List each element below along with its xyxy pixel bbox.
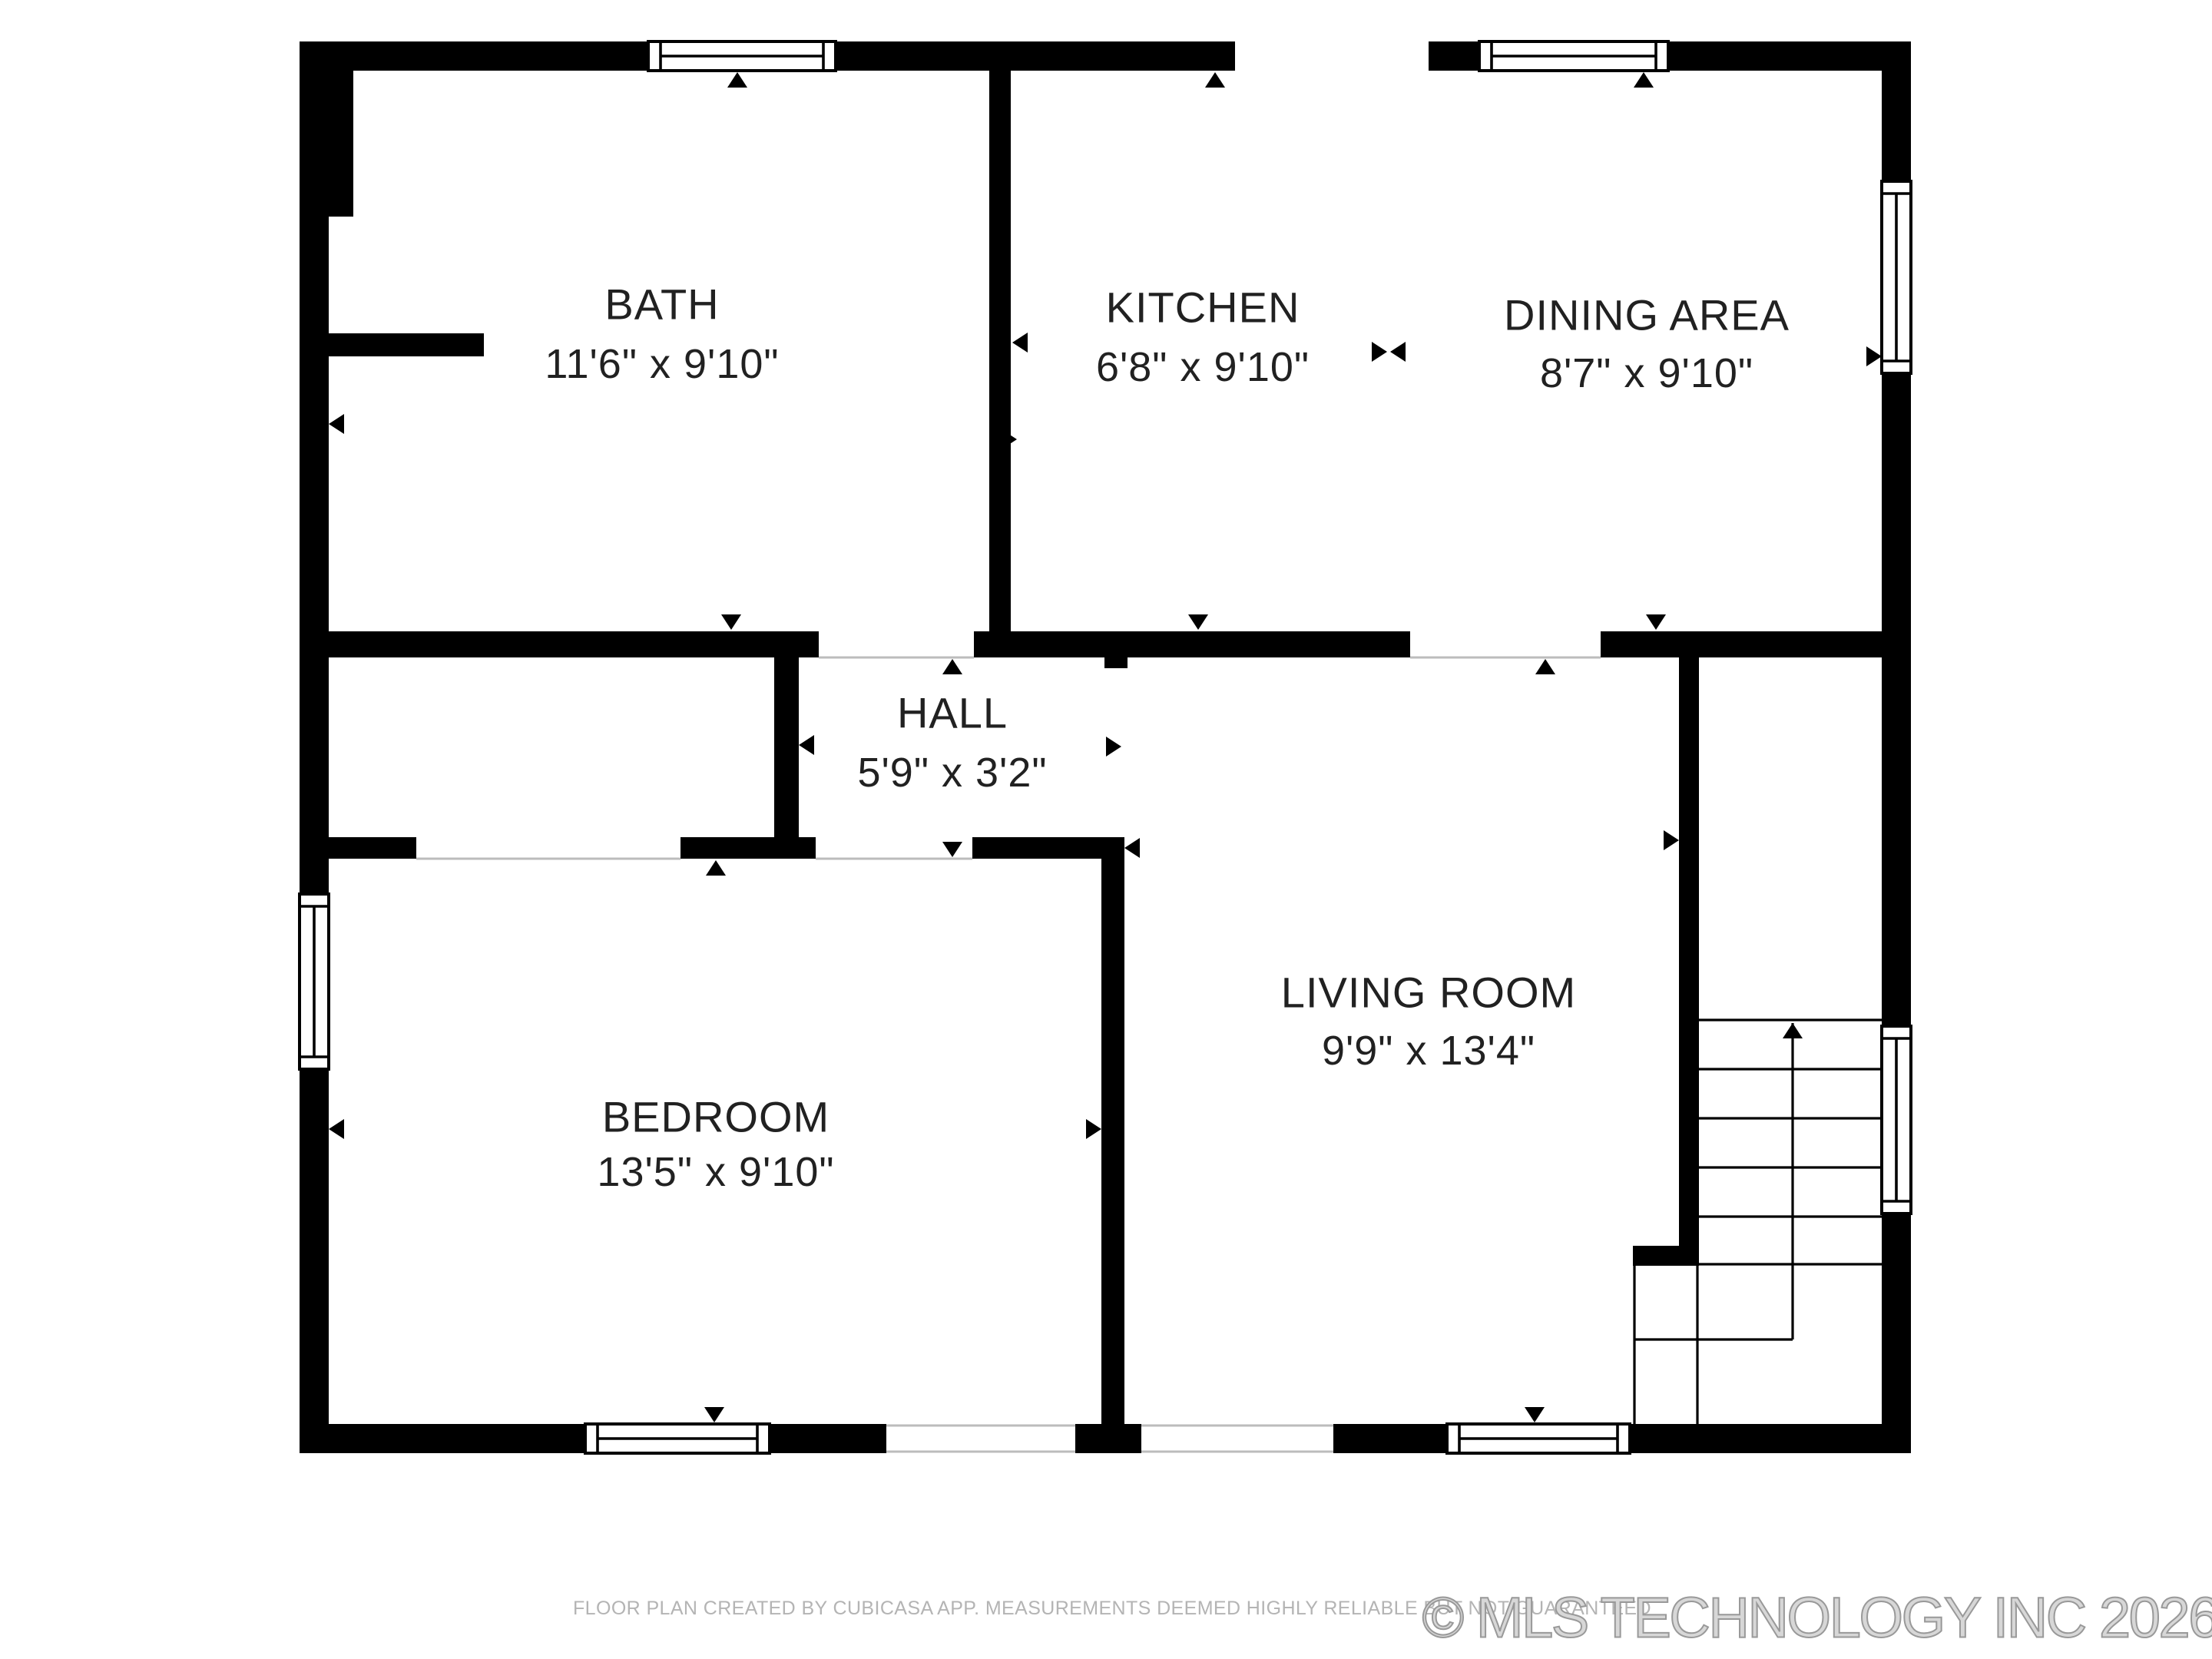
room-dims-living-room: 9'9" x 13'4" [1322, 1028, 1535, 1074]
bath-window [648, 41, 836, 71]
floor-plan-page: BATH11'6" x 9'10"KITCHEN6'8" x 9'10"DINI… [0, 0, 2212, 1659]
room-label-hall: HALL [897, 689, 1008, 737]
outer-bottom-wall-2 [770, 1424, 886, 1453]
outer-left-wall-upper [300, 41, 329, 894]
room-dims-bath: 11'6" x 9'10" [545, 341, 779, 387]
bath-closet-stub [329, 333, 484, 356]
outer-top-wall-4 [1668, 41, 1911, 71]
hall-left-wall [774, 656, 799, 859]
lower-wall-left [329, 837, 416, 859]
room-dims-hall: 5'9" x 3'2" [857, 750, 1047, 796]
dining-window [1479, 41, 1668, 71]
room-label-kitchen: KITCHEN [1106, 283, 1300, 332]
bedroom-living-divider [1101, 837, 1124, 1453]
living-bottom-window [1447, 1424, 1630, 1453]
stairs-stub [1633, 1246, 1699, 1266]
room-dims-bedroom: 13'5" x 9'10" [597, 1149, 834, 1195]
outer-right-wall-1 [1882, 41, 1911, 181]
room-dims-kitchen: 6'8" x 9'10" [1096, 344, 1310, 390]
floor-plan: BATH11'6" x 9'10"KITCHEN6'8" x 9'10"DINI… [0, 0, 2212, 1659]
room-label-living-room: LIVING ROOM [1281, 969, 1576, 1017]
lower-wall-mid [680, 837, 816, 859]
outer-bottom-wall-5 [1630, 1424, 1911, 1453]
room-label-bath: BATH [604, 280, 719, 329]
room-dims-dining-area: 8'7" x 9'10" [1540, 350, 1753, 396]
outer-bottom-wall-1 [300, 1424, 585, 1453]
outer-left-wall-lower [300, 1069, 329, 1453]
outer-bottom-wall-4 [1333, 1424, 1447, 1453]
outer-top-wall-3 [1429, 41, 1481, 71]
room-label-bedroom: BEDROOM [602, 1093, 829, 1141]
bedroom-left-window [300, 894, 329, 1069]
mid-wall-right [1699, 631, 1882, 657]
stairs-window [1882, 1026, 1911, 1214]
room-label-dining-area: DINING AREA [1504, 291, 1790, 339]
mid-wall-bath-south [329, 631, 819, 657]
mid-wall-kitchen-south [974, 631, 1410, 657]
stairs-left-wall [1679, 631, 1699, 1246]
bedroom-bottom-window [585, 1424, 770, 1453]
outer-left-wall-thick [329, 41, 353, 217]
outer-right-wall-2 [1882, 373, 1911, 1026]
watermark: © MLS TECHNOLOGY INC 2026 [1422, 1586, 2212, 1650]
dining-right-window [1882, 181, 1911, 373]
outer-top-wall-2 [836, 41, 1235, 71]
outer-right-wall-3 [1882, 1214, 1911, 1453]
hall-right-stub [1104, 656, 1128, 668]
bath-kitchen-divider [989, 71, 1011, 657]
mid-wall-dining-south [1601, 631, 1679, 657]
